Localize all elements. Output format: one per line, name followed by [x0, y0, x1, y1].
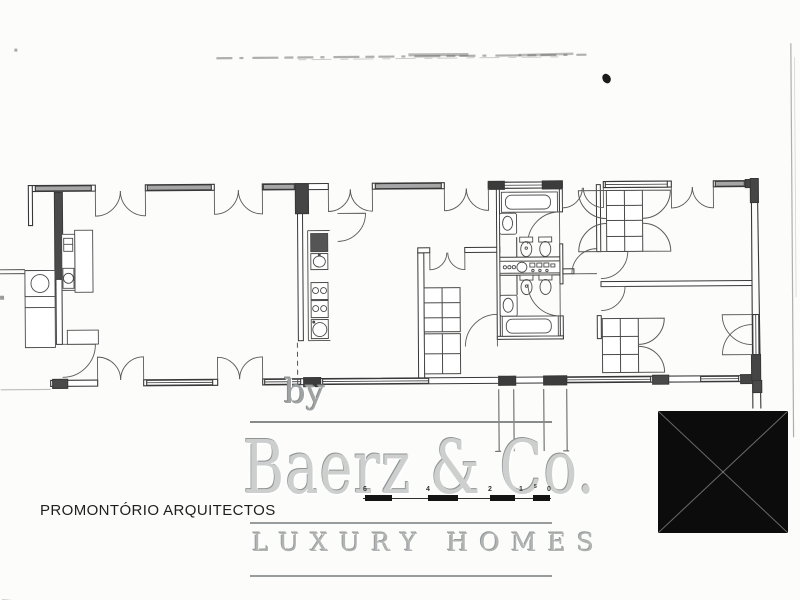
threshold — [544, 376, 567, 385]
scale-bar-segment — [365, 495, 392, 501]
kitchen-sink-icon — [311, 254, 328, 270]
door — [350, 189, 372, 211]
door — [572, 249, 597, 274]
window — [263, 184, 294, 189]
washer-icon — [311, 320, 328, 339]
door — [95, 191, 120, 216]
scanned-floorplan-page: by Baerz & Co. LUXURY HOMES PROMONTÓRIO … — [0, 0, 800, 600]
left-kitchen-unit — [62, 230, 93, 292]
washbasin-icon — [500, 213, 517, 234]
left-wall — [28, 186, 32, 226]
toilet-icon — [520, 237, 533, 257]
right-wall — [750, 178, 762, 408]
door — [238, 190, 262, 214]
redaction-x-pattern — [658, 411, 788, 533]
scale-tick-label: 1 — [519, 486, 523, 493]
threshold — [653, 375, 669, 384]
window — [375, 183, 441, 188]
kitchen-galley — [308, 230, 331, 340]
scale-tick-label: 2 — [488, 486, 492, 493]
window — [147, 185, 211, 190]
bathtub-icon — [502, 316, 558, 336]
fridge-icon — [311, 234, 328, 252]
speck-artifact — [14, 49, 17, 52]
door — [120, 357, 143, 380]
wardrobe-closet — [424, 288, 461, 374]
scale-bar-segment — [428, 495, 458, 501]
door — [671, 187, 692, 208]
watermark-by: by — [284, 372, 325, 412]
window — [715, 181, 744, 186]
wall-block — [750, 178, 758, 202]
watermark-rule-middle — [250, 522, 552, 524]
wardrobe-bedroom1 — [578, 190, 670, 252]
wall-hatch — [488, 181, 504, 189]
bedroom-divider-wall — [601, 281, 752, 287]
door — [466, 188, 488, 210]
wall-stub — [295, 184, 308, 214]
exterior-walls — [0, 178, 762, 413]
threshold — [53, 379, 68, 388]
door — [214, 190, 238, 214]
scale-bar: 6 4 2 1 5 0 — [363, 486, 553, 506]
scan-streak-artifact — [216, 54, 586, 61]
door — [448, 253, 465, 270]
door — [97, 357, 120, 380]
door — [328, 189, 350, 211]
door — [601, 251, 628, 278]
scale-tick-label: 5 — [534, 484, 537, 490]
door — [692, 187, 713, 208]
watermark-tagline: LUXURY HOMES — [252, 528, 562, 557]
wall-hatch — [542, 181, 562, 189]
watermark-rule-bottom — [250, 575, 552, 577]
door — [444, 189, 466, 211]
bidet-icon — [539, 237, 552, 257]
speck-artifact — [0, 296, 4, 300]
washbasin-icon — [500, 295, 517, 316]
interior-walls — [54, 184, 752, 389]
redaction-square — [658, 411, 788, 533]
wardrobe-bedroom2 — [602, 318, 664, 372]
door — [528, 284, 560, 316]
wall-block — [751, 354, 760, 380]
ink-dot-artifact — [601, 72, 613, 85]
watermark-rule-top — [250, 421, 552, 423]
top-wall — [29, 180, 757, 216]
bottom-wall — [1, 374, 759, 389]
door — [722, 325, 752, 355]
scale-bar-segment — [533, 495, 550, 501]
toilet-icon — [520, 275, 533, 295]
bidet-icon — [539, 275, 552, 295]
scale-tick-label: 6 — [363, 486, 367, 493]
scale-tick-label: 0 — [547, 486, 551, 493]
scale-bar-segment — [490, 495, 515, 501]
door — [62, 344, 95, 377]
door — [601, 286, 625, 310]
door — [218, 357, 240, 379]
stove-icon — [311, 283, 328, 318]
door — [465, 314, 497, 346]
vanity-counter — [500, 261, 560, 273]
scan-edge-line-artifact — [791, 43, 797, 437]
wall-block — [753, 380, 762, 392]
door — [337, 213, 365, 241]
window — [35, 186, 91, 191]
door — [239, 357, 262, 379]
threshold — [499, 376, 516, 385]
door — [722, 315, 752, 345]
scale-tick-label: 4 — [426, 486, 430, 493]
door — [430, 253, 447, 270]
architect-label: PROMONTÓRIO ARQUITECTOS — [40, 502, 276, 519]
door — [120, 191, 145, 216]
bathtub-icon — [501, 192, 557, 212]
